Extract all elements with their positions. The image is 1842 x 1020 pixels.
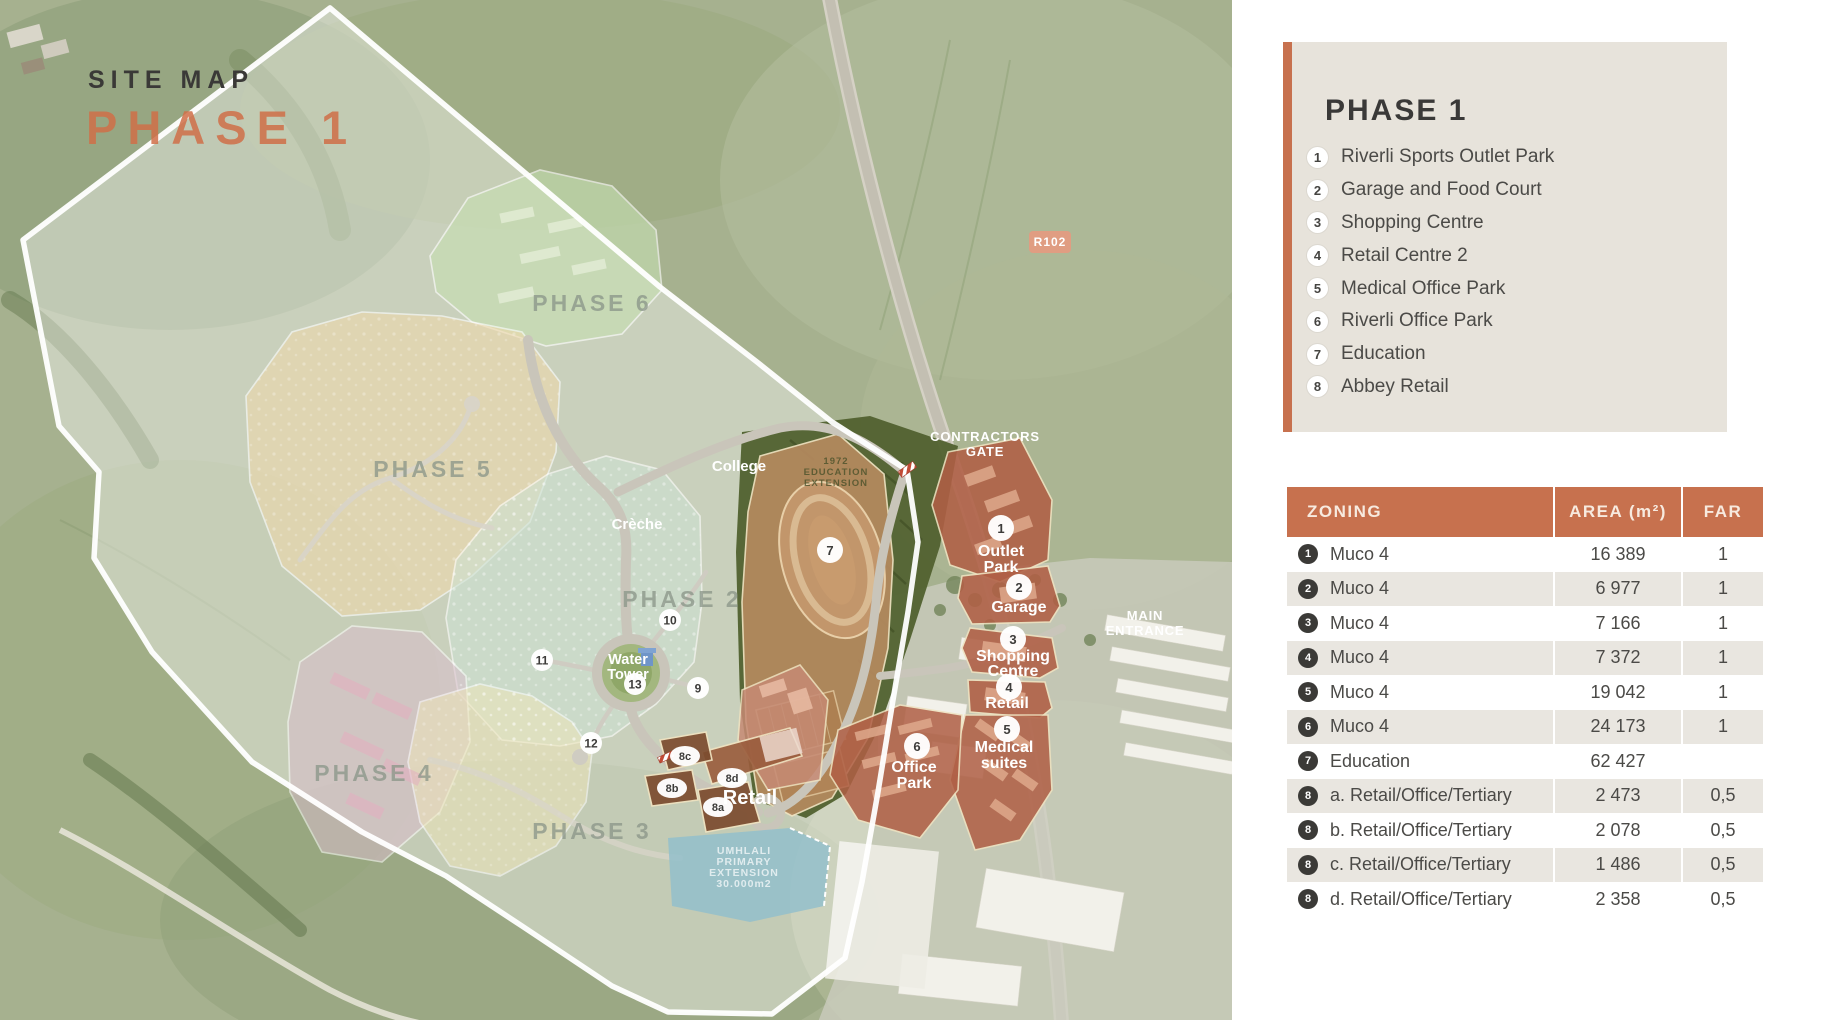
- area-value: 2 473: [1553, 779, 1681, 814]
- table-row: 8c. Retail/Office/Tertiary 1 486 0,5: [1287, 848, 1763, 883]
- contractors-gate-label-1: CONTRACTORS: [930, 429, 1040, 444]
- svg-text:8a: 8a: [712, 802, 725, 814]
- legend-item-3: 3Shopping Centre: [1307, 207, 1727, 240]
- svg-text:suites: suites: [981, 755, 1027, 772]
- row-number-badge: 8: [1298, 889, 1318, 909]
- legend-item-label: Garage and Food Court: [1341, 179, 1542, 201]
- svg-text:Medical: Medical: [975, 739, 1034, 756]
- legend-accent-bar: [1283, 42, 1292, 432]
- education-extension-note-3: EXTENSION: [804, 478, 868, 489]
- far-value: 0,5: [1681, 779, 1763, 814]
- area-value: 1 486: [1553, 848, 1681, 883]
- svg-text:10: 10: [663, 614, 677, 628]
- legend-item-7: 7Education: [1307, 338, 1727, 371]
- college-label: College: [712, 458, 766, 475]
- zone-name: Muco 4: [1330, 647, 1389, 668]
- phase-5-label: PHASE 5: [373, 456, 492, 482]
- svg-text:13: 13: [628, 678, 642, 692]
- far-value: 1: [1681, 572, 1763, 607]
- block-marker-8c: 8c: [670, 746, 700, 766]
- row-number-badge: 8: [1298, 786, 1318, 806]
- zone-name: Muco 4: [1330, 682, 1389, 703]
- area-value: 19 042: [1553, 675, 1681, 710]
- zone-name: d. Retail/Office/Tertiary: [1330, 889, 1512, 910]
- svg-text:Park: Park: [984, 559, 1019, 576]
- education-extension-note-1: 1972: [823, 456, 848, 467]
- legend-item-5: 5Medical Office Park: [1307, 272, 1727, 305]
- row-number-badge: 8: [1298, 820, 1318, 840]
- map-title-phase: PHASE 1: [86, 100, 357, 155]
- svg-text:3: 3: [1009, 632, 1016, 647]
- table-row: 1Muco 4 16 389 1: [1287, 537, 1763, 572]
- row-number-badge: 6: [1298, 717, 1318, 737]
- block-marker-8a: 8a: [703, 797, 733, 817]
- zone-name: Muco 4: [1330, 544, 1389, 565]
- row-number-badge: 8: [1298, 855, 1318, 875]
- svg-text:7: 7: [826, 543, 833, 558]
- umhlali-label-4: 30.000m2: [716, 878, 771, 890]
- row-number-badge: 5: [1298, 682, 1318, 702]
- legend-number-badge: 5: [1307, 278, 1328, 299]
- svg-text:5: 5: [1003, 722, 1010, 737]
- svg-text:11: 11: [536, 654, 549, 668]
- legend-item-label: Shopping Centre: [1341, 212, 1484, 234]
- zone-name: b. Retail/Office/Tertiary: [1330, 820, 1512, 841]
- area-value: 62 427: [1553, 744, 1681, 779]
- legend-item-label: Education: [1341, 343, 1426, 365]
- far-value: 1: [1681, 641, 1763, 676]
- contractors-gate-label-2: GATE: [966, 444, 1004, 459]
- table-row: 5Muco 4 19 042 1: [1287, 675, 1763, 710]
- svg-text:12: 12: [584, 737, 598, 751]
- legend-item-label: Medical Office Park: [1341, 278, 1505, 300]
- legend-number-badge: 8: [1307, 376, 1328, 397]
- zone-name: c. Retail/Office/Tertiary: [1330, 854, 1511, 875]
- legend-number-badge: 7: [1307, 344, 1328, 365]
- phase-3-label: PHASE 3: [532, 818, 651, 844]
- row-number-badge: 3: [1298, 613, 1318, 633]
- far-value: 0,5: [1681, 813, 1763, 848]
- zoning-table: ZONING AREA (m²) FAR 1Muco 4 16 389 1 2M…: [1287, 487, 1763, 917]
- svg-text:Office: Office: [891, 759, 936, 776]
- legend-number-badge: 2: [1307, 180, 1328, 201]
- site-marker-9: 9: [687, 677, 709, 699]
- r102-label: R102: [1034, 235, 1067, 249]
- legend-number-badge: 3: [1307, 212, 1328, 233]
- table-row: 8a. Retail/Office/Tertiary 2 473 0,5: [1287, 779, 1763, 814]
- legend-item-2: 2Garage and Food Court: [1307, 174, 1727, 207]
- site-marker-11: 11: [531, 649, 553, 671]
- phase1-legend-panel: PHASE 1 1Riverli Sports Outlet Park 2Gar…: [1283, 42, 1727, 432]
- svg-text:4: 4: [1005, 680, 1013, 695]
- block-marker-8b: 8b: [657, 778, 687, 798]
- legend-title: PHASE 1: [1283, 42, 1727, 128]
- svg-text:2: 2: [1015, 580, 1022, 595]
- row-number-badge: 1: [1298, 544, 1318, 564]
- far-value: 1: [1681, 606, 1763, 641]
- zone-name: Muco 4: [1330, 613, 1389, 634]
- table-row: 3Muco 4 7 166 1: [1287, 606, 1763, 641]
- zone-name: Muco 4: [1330, 578, 1389, 599]
- legend-number-badge: 6: [1307, 311, 1328, 332]
- phase-6-label: PHASE 6: [532, 290, 651, 316]
- far-column-header: FAR: [1681, 487, 1763, 537]
- svg-text:Retail: Retail: [985, 695, 1029, 712]
- education-extension-note-2: EDUCATION: [804, 467, 869, 478]
- area-value: 2 358: [1553, 882, 1681, 917]
- site-marker-12: 12: [580, 732, 602, 754]
- zoning-column-header: ZONING: [1287, 487, 1553, 537]
- water-tower-label-1: Water: [608, 652, 648, 668]
- area-value: 16 389: [1553, 537, 1681, 572]
- area-value: 6 977: [1553, 572, 1681, 607]
- map-title-kicker: SITE MAP: [88, 66, 254, 95]
- row-number-badge: 2: [1298, 579, 1318, 599]
- r102-badge: R102: [1029, 231, 1071, 253]
- row-number-badge: 4: [1298, 648, 1318, 668]
- svg-text:Outlet: Outlet: [978, 543, 1025, 560]
- legend-item-4: 4Retail Centre 2: [1307, 239, 1727, 272]
- zoning-table-body: 1Muco 4 16 389 1 2Muco 4 6 977 1 3Muco 4…: [1287, 537, 1763, 917]
- svg-text:Park: Park: [897, 775, 932, 792]
- block-marker-8d: 8d: [717, 768, 747, 788]
- main-entrance-label-1: MAIN: [1127, 608, 1163, 623]
- area-value: 2 078: [1553, 813, 1681, 848]
- svg-text:8d: 8d: [726, 773, 739, 785]
- row-number-badge: 7: [1298, 751, 1318, 771]
- legend-item-label: Abbey Retail: [1341, 376, 1449, 398]
- legend-item-label: Riverli Office Park: [1341, 310, 1493, 332]
- table-row: 8b. Retail/Office/Tertiary 2 078 0,5: [1287, 813, 1763, 848]
- far-value: 1: [1681, 537, 1763, 572]
- main-entrance-label-2: ENTRANCE: [1106, 623, 1185, 638]
- area-value: 24 173: [1553, 710, 1681, 745]
- zone-name: Education: [1330, 751, 1410, 772]
- creche-label: Crèche: [612, 516, 663, 533]
- site-marker-10: 10: [659, 609, 681, 631]
- legend-item-8: 8Abbey Retail: [1307, 371, 1727, 404]
- far-value: 0,5: [1681, 848, 1763, 883]
- phase-2-label: PHASE 2: [622, 586, 741, 612]
- svg-text:8b: 8b: [666, 783, 679, 795]
- svg-text:6: 6: [913, 739, 920, 754]
- area-value: 7 372: [1553, 641, 1681, 676]
- legend-number-badge: 4: [1307, 245, 1328, 266]
- svg-text:Garage: Garage: [991, 599, 1046, 616]
- parcel-marker-7: 7: [817, 537, 843, 563]
- zone-name: a. Retail/Office/Tertiary: [1330, 785, 1512, 806]
- svg-text:8c: 8c: [679, 751, 691, 763]
- table-row: 4Muco 4 7 372 1: [1287, 641, 1763, 676]
- table-row: 7Education 62 427: [1287, 744, 1763, 779]
- far-value: 1: [1681, 710, 1763, 745]
- table-row: 2Muco 4 6 977 1: [1287, 572, 1763, 607]
- legend-items: 1Riverli Sports Outlet Park 2Garage and …: [1283, 141, 1727, 403]
- far-value: [1681, 744, 1763, 779]
- legend-item-label: Retail Centre 2: [1341, 245, 1468, 267]
- legend-number-badge: 1: [1307, 147, 1328, 168]
- legend-item-1: 1Riverli Sports Outlet Park: [1307, 141, 1727, 174]
- phase-4-label: PHASE 4: [314, 760, 433, 786]
- site-map: R102 PHASE 6 PHASE 5 PHASE 2 PHASE 4 PHA…: [0, 0, 1232, 1020]
- svg-text:1: 1: [997, 521, 1004, 536]
- far-value: 1: [1681, 675, 1763, 710]
- legend-item-label: Riverli Sports Outlet Park: [1341, 146, 1554, 168]
- area-column-header: AREA (m²): [1553, 487, 1681, 537]
- site-marker-13: 13: [624, 673, 646, 695]
- far-value: 0,5: [1681, 882, 1763, 917]
- svg-text:9: 9: [695, 682, 702, 696]
- zoning-table-header: ZONING AREA (m²) FAR: [1287, 487, 1763, 537]
- site-map-page: R102 PHASE 6 PHASE 5 PHASE 2 PHASE 4 PHA…: [0, 0, 1842, 1020]
- legend-item-6: 6Riverli Office Park: [1307, 305, 1727, 338]
- area-value: 7 166: [1553, 606, 1681, 641]
- table-row: 6Muco 4 24 173 1: [1287, 710, 1763, 745]
- table-row: 8d. Retail/Office/Tertiary 2 358 0,5: [1287, 882, 1763, 917]
- zone-name: Muco 4: [1330, 716, 1389, 737]
